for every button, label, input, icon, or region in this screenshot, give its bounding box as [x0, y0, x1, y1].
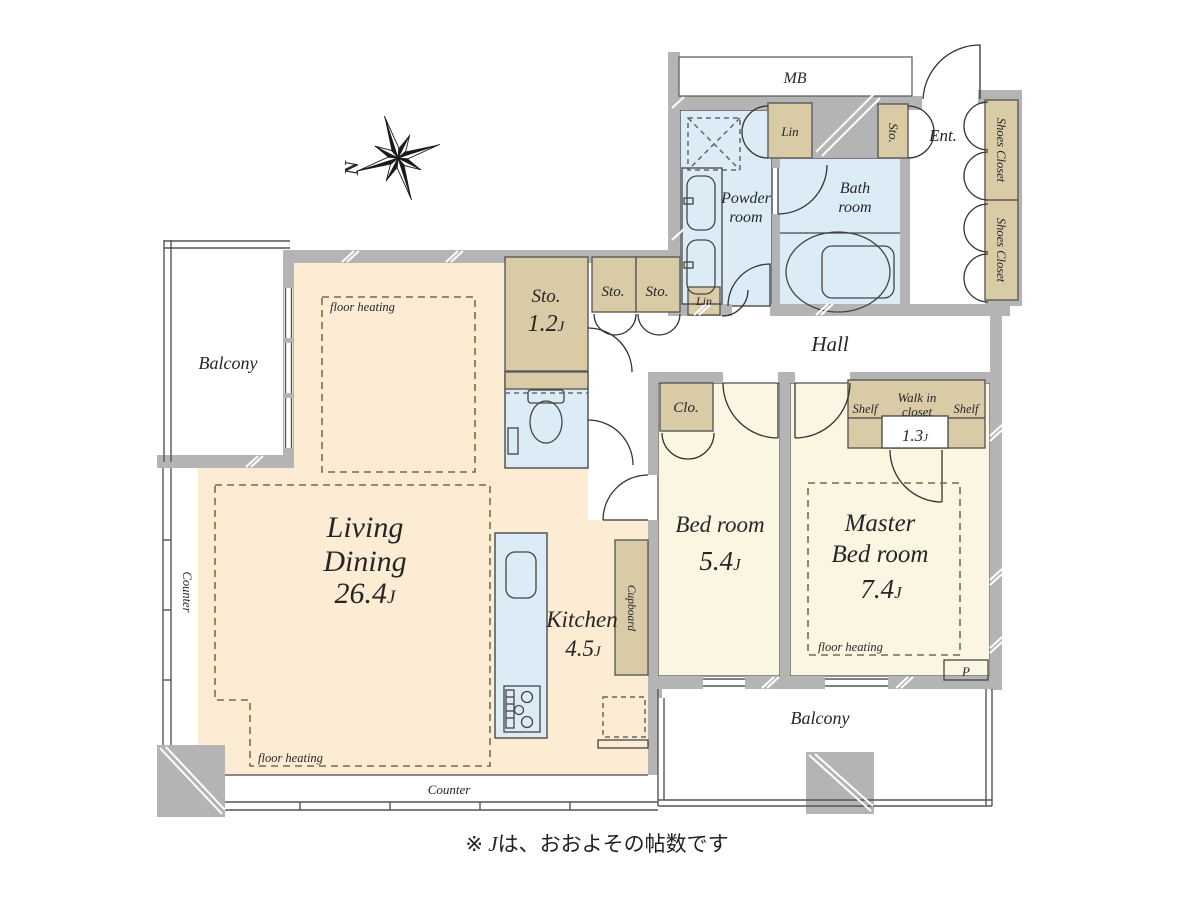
shelf-right-label: Shelf [954, 402, 981, 416]
pipe-shaft [812, 88, 882, 158]
shoes-closet-upper-label: Shoes Closet [994, 118, 1008, 183]
svg-text:closet: closet [902, 404, 933, 419]
counter-left-label: Counter [180, 572, 194, 613]
bedroom-label: Bed room [675, 512, 764, 537]
walk-in-closet-label: Walk in [898, 390, 937, 405]
shelf-left-label: Shelf [853, 402, 880, 416]
svg-text:room: room [729, 209, 762, 226]
hall-label: Hall [810, 332, 849, 356]
counter-bottom-label: Counter [428, 782, 472, 797]
balcony-left-label: Balcony [199, 353, 258, 373]
linen-upper-label: Lin [780, 124, 798, 139]
floor-heating-label: floor heating [258, 751, 323, 765]
living-door [603, 475, 648, 520]
mb-label: MB [782, 70, 806, 87]
svg-text:room: room [838, 199, 871, 216]
storage-entrance-label: Sto. [886, 123, 901, 143]
compass-north-label: N [341, 159, 363, 176]
toilet-door [588, 420, 633, 465]
svg-text:Dining: Dining [322, 545, 406, 578]
storage-small-2-label: Sto. [646, 284, 669, 300]
storage-large-label: Sto. [531, 286, 560, 307]
living-dining-floor [294, 263, 505, 468]
floor-plan-drawing: N MB Powder room Bath room Lin Lin Sto. … [0, 0, 1200, 900]
footnote: ※ Jは、おおよその帖数です [465, 832, 728, 856]
entrance-label: Ent. [928, 126, 957, 145]
bath-room-label: Bath [840, 180, 870, 197]
toilet-shelf [505, 372, 588, 389]
kitchen-island [495, 533, 547, 738]
shoes-closet-lower-label: Shoes Closet [994, 218, 1008, 283]
floor-heating-label: floor heating [818, 640, 883, 654]
floor-plan-page: N MB Powder room Bath room Lin Lin Sto. … [0, 0, 1200, 900]
compass-rose: N [341, 116, 440, 200]
cupboard-label: Cupboard [625, 585, 637, 631]
floor-heating-label: floor heating [330, 300, 395, 314]
kitchen-label: Kitchen [545, 607, 618, 632]
front-door [923, 45, 980, 99]
pipe-space-label: P [961, 664, 970, 679]
balcony-bottom-label: Balcony [791, 708, 850, 728]
linen-lower-label: Lin [695, 294, 712, 308]
svg-text:Bed room: Bed room [832, 541, 929, 568]
powder-room-label: Powder [720, 190, 772, 207]
master-bedroom-label: Master [844, 510, 916, 537]
storage-small-1-label: Sto. [602, 284, 625, 300]
powder-room-floor [680, 110, 772, 306]
closet-label: Clo. [673, 400, 698, 416]
living-dining-label: Living [326, 511, 404, 544]
